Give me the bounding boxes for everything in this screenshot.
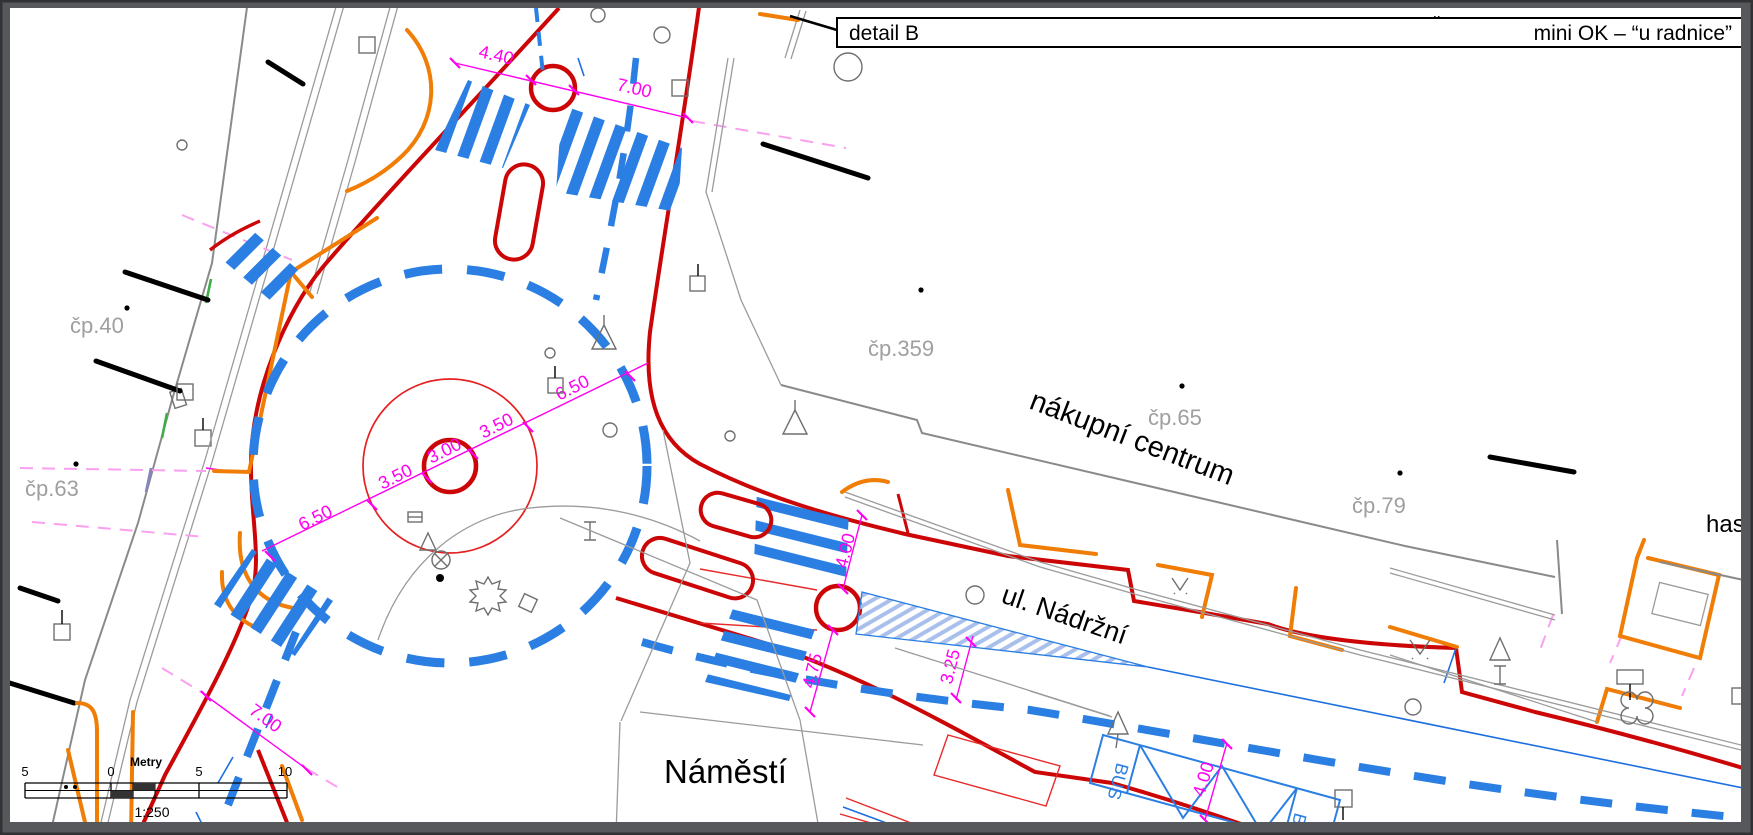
scale-tick-0: 0 (107, 764, 114, 779)
parcel-label-cp359: čp.359 (868, 336, 934, 361)
survey-dot (918, 287, 923, 292)
survey-dot (1179, 383, 1184, 388)
site-plan-drawing: čp.40 čp.63 (0, 0, 1753, 835)
title-stray-mark: ¨ (1434, 13, 1441, 35)
scale-ratio: 1:250 (134, 804, 169, 820)
title-block: detail B mini OK – “u radnice” ¨ (790, 13, 1742, 47)
lamp-dot (436, 574, 444, 582)
title-detail-label: detail B (849, 22, 919, 45)
cad-drawing-viewport: čp.40 čp.63 (0, 0, 1753, 835)
survey-dot (124, 305, 129, 310)
parcel-label-cp40: čp.40 (70, 313, 124, 338)
scale-tick-5: 5 (195, 764, 202, 779)
refuge-island-north (531, 66, 575, 110)
curbs-orange-part (131, 712, 133, 835)
parcel-label-cp63: čp.63 (25, 476, 79, 501)
title-project-label: mini OK – “u radnice” (1534, 22, 1732, 45)
scale-tick-10: 10 (278, 764, 292, 779)
survey-dot (73, 461, 78, 466)
label-square-namesti: Náměstí (664, 753, 787, 790)
scale-title: Metry (130, 755, 162, 769)
scale-bar-dot (64, 785, 68, 789)
scale-tick-minus5: 5 (21, 764, 28, 779)
label-right-edge-partial: has (1706, 511, 1745, 538)
parcel-label-cp79: čp.79 (1352, 493, 1406, 518)
scale-bar-dot (73, 785, 77, 789)
refuge-island-east (816, 586, 860, 630)
parcel-label-cp65: čp.65 (1148, 405, 1202, 430)
survey-dot (1397, 470, 1402, 475)
scale-bar-fill-cell (133, 783, 155, 791)
scale-bar-fill-cell (111, 791, 133, 799)
